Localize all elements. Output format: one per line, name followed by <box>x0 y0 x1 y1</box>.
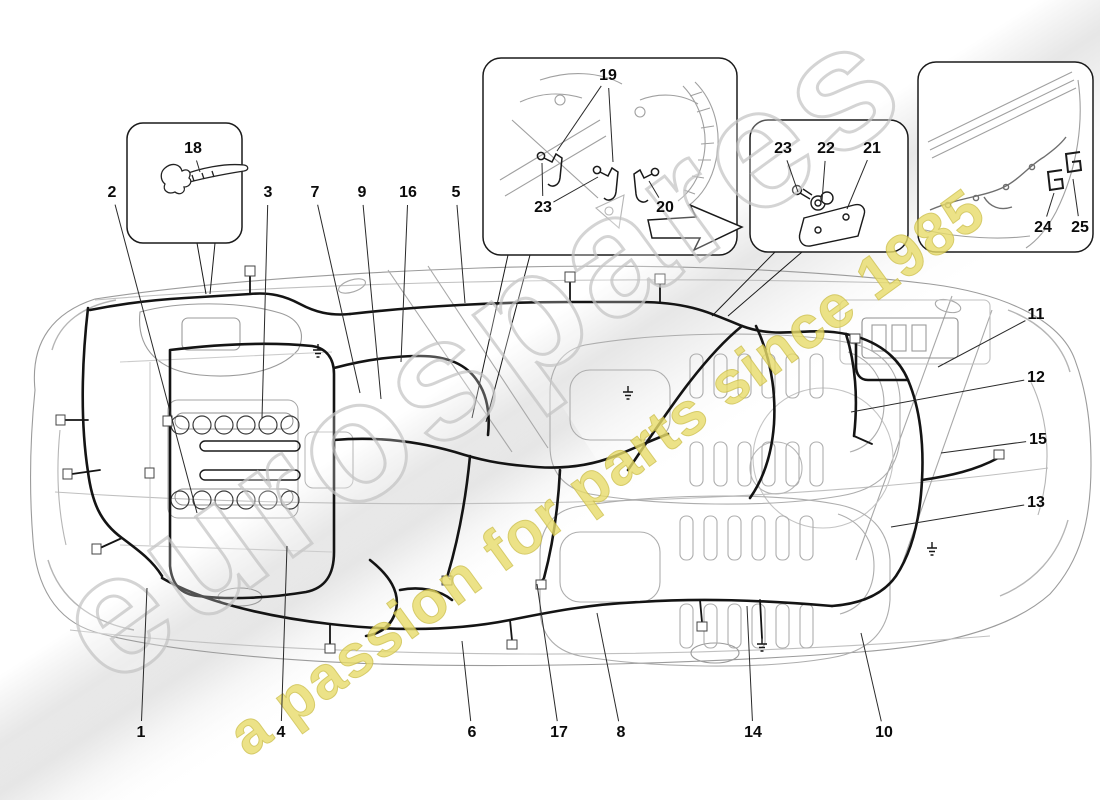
leader-line-19 <box>557 86 601 151</box>
leader-line-13 <box>891 505 1024 527</box>
leader-line-18 <box>196 160 200 172</box>
leader-line-17 <box>537 584 557 721</box>
leader-line-23b <box>787 160 798 192</box>
leader-line-24 <box>1047 193 1054 217</box>
leader-line-12 <box>851 380 1024 412</box>
leader-line-21 <box>847 160 867 209</box>
leader-line-15 <box>941 442 1026 453</box>
leader-line-22 <box>822 161 825 201</box>
leader-line-3 <box>262 205 268 418</box>
leader-line-2 <box>115 205 197 513</box>
leader-line-7 <box>318 205 360 393</box>
leader-line-8 <box>597 613 619 721</box>
leader-line-4 <box>281 546 287 721</box>
leader-line-9 <box>363 205 381 399</box>
leader-line-23a <box>542 163 543 196</box>
parts-diagram-stage: eurospares a passion for parts since 198… <box>0 0 1100 800</box>
leader-line-10 <box>861 633 881 721</box>
leader-line-1 <box>141 588 147 721</box>
leader-line-6 <box>462 641 471 721</box>
leader-line-16 <box>401 205 408 362</box>
leader-lines <box>115 86 1078 721</box>
leader-line-11 <box>938 321 1025 367</box>
leader-line-19 <box>609 88 613 162</box>
leader-line-25 <box>1073 179 1078 216</box>
leader-lines-layer <box>0 0 1100 800</box>
leader-line-14 <box>747 606 752 721</box>
leader-line-20 <box>649 181 659 198</box>
leader-line-23a <box>553 177 598 202</box>
leader-line-5 <box>457 205 465 303</box>
